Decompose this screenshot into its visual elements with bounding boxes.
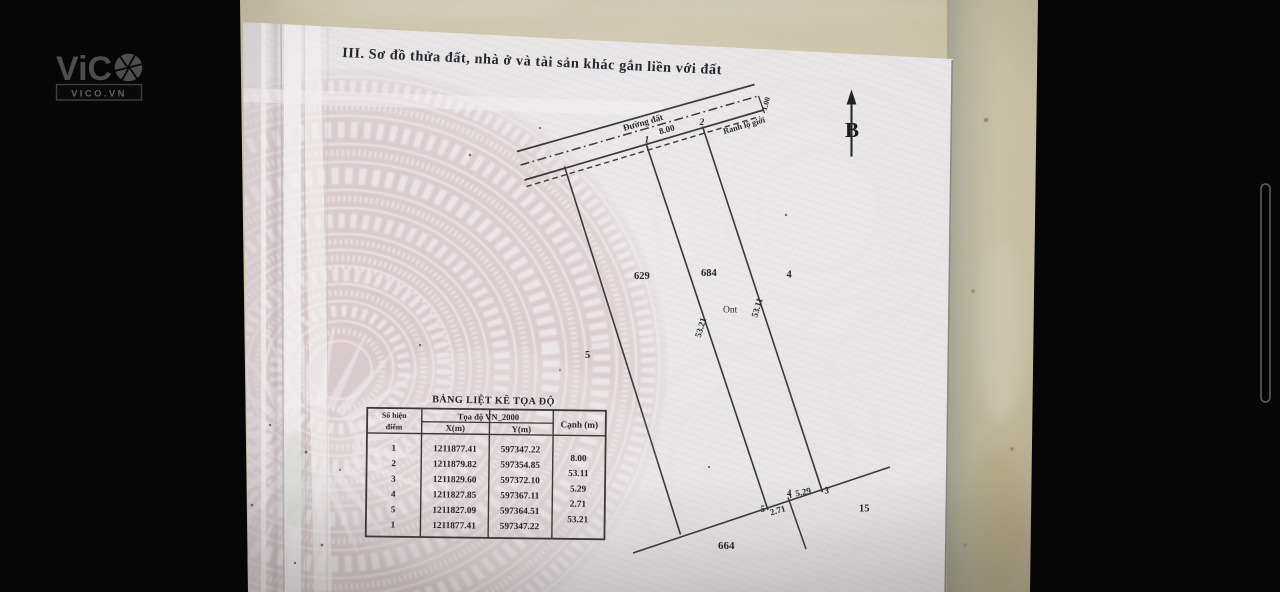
svg-text:ViC: ViC <box>56 50 112 88</box>
svg-text:VICO.VN: VICO.VN <box>71 88 127 99</box>
